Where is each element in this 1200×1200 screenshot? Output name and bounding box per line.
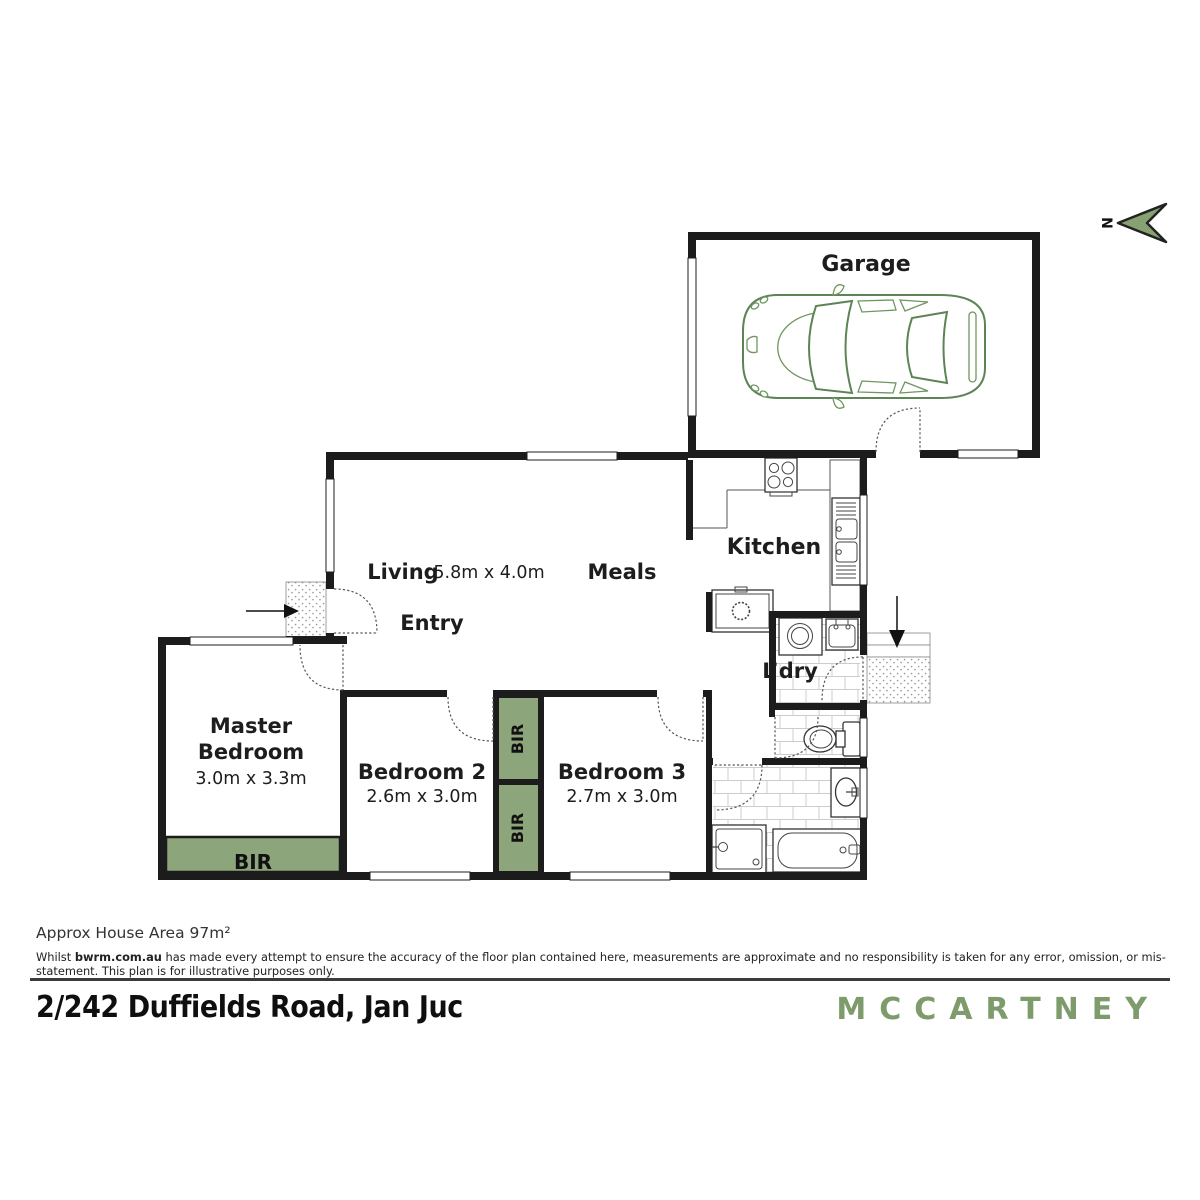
footer-divider: [30, 978, 1170, 981]
master-bedroom-dims: 3.0m x 3.3m: [195, 769, 306, 789]
bedroom2-dims: 2.6m x 3.0m: [366, 787, 477, 807]
bir-master-label: BIR: [234, 850, 272, 874]
car-icon: [743, 285, 985, 409]
floor-plan: N Garage Living 5.8m x 4.0m Meals Entry …: [0, 0, 1200, 920]
bedroom2-label: Bedroom 2: [358, 760, 486, 784]
kitchen-sink-icon: [832, 498, 860, 585]
bedroom3-dims: 2.7m x 3.0m: [566, 787, 677, 807]
disclaimer-prefix: Whilst: [36, 950, 75, 964]
oven-icon: [712, 587, 773, 632]
disclaimer-rest: has made every attempt to ensure the acc…: [36, 950, 1166, 978]
bedroom3-door: [658, 697, 703, 741]
master-bedroom-label-2: Bedroom: [198, 740, 304, 764]
bir-top-label: BIR: [508, 724, 527, 754]
cooktop-icon: [765, 458, 797, 496]
washing-machine-icon: [779, 618, 822, 655]
master-bedroom-label-1: Master: [210, 714, 293, 738]
agency-logo: MCCARTNEY: [836, 992, 1160, 1027]
living-label: Living: [367, 560, 438, 584]
bir-bottom-label: BIR: [508, 813, 527, 843]
north-arrow-icon: N: [1098, 204, 1166, 242]
disclaimer-brand: bwrm.com.au: [75, 950, 162, 964]
entry-label: Entry: [400, 611, 464, 635]
vanity-basin-icon: [831, 768, 862, 817]
disclaimer: Whilst bwrm.com.au has made every attemp…: [36, 950, 1170, 978]
garage-rear-door: [876, 408, 920, 452]
master-bedroom-door: [300, 645, 343, 690]
shower-icon: [712, 825, 766, 873]
laundry-label: L’dry: [762, 659, 818, 683]
bedroom2-door: [448, 697, 493, 741]
bedroom3-label: Bedroom 3: [558, 760, 686, 784]
house-area-note: Approx House Area 97m²: [36, 924, 231, 942]
garage-label: Garage: [821, 252, 910, 277]
north-label: N: [1098, 217, 1114, 229]
living-meals-dims: 5.8m x 4.0m: [433, 563, 544, 583]
meals-label: Meals: [587, 560, 656, 584]
property-address: 2/242 Duffields Road, Jan Juc: [36, 990, 463, 1025]
kitchen-label: Kitchen: [727, 535, 821, 560]
front-door: [334, 589, 377, 633]
bir-column: [493, 697, 544, 872]
laundry-trough-icon: [826, 619, 858, 650]
bathtub-icon: [773, 829, 862, 872]
